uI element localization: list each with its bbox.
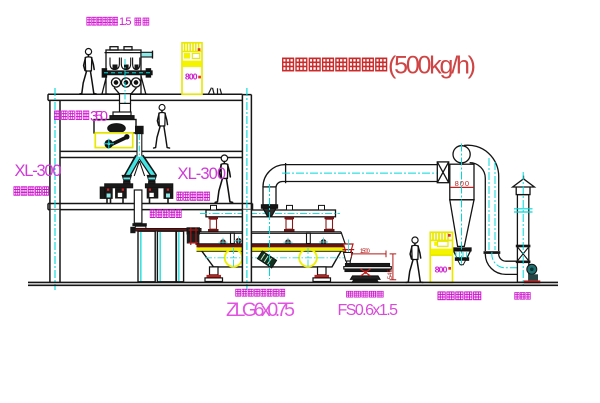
svg-text:(500kg/h): (500kg/h) — [388, 52, 476, 80]
svg-text:800: 800 — [435, 265, 448, 275]
svg-text:XL-300: XL-300 — [15, 162, 62, 180]
svg-text:FS0.6x1.5: FS0.6x1.5 — [338, 302, 399, 319]
svg-text:545: 545 — [388, 269, 394, 280]
svg-text:800: 800 — [185, 72, 198, 82]
svg-text:XL-300: XL-300 — [178, 165, 227, 183]
svg-text:ZLG6x0.75: ZLG6x0.75 — [226, 299, 295, 321]
svg-text:350: 350 — [90, 109, 108, 125]
svg-text:1.5: 1.5 — [119, 16, 132, 28]
svg-text:1500: 1500 — [360, 249, 371, 255]
